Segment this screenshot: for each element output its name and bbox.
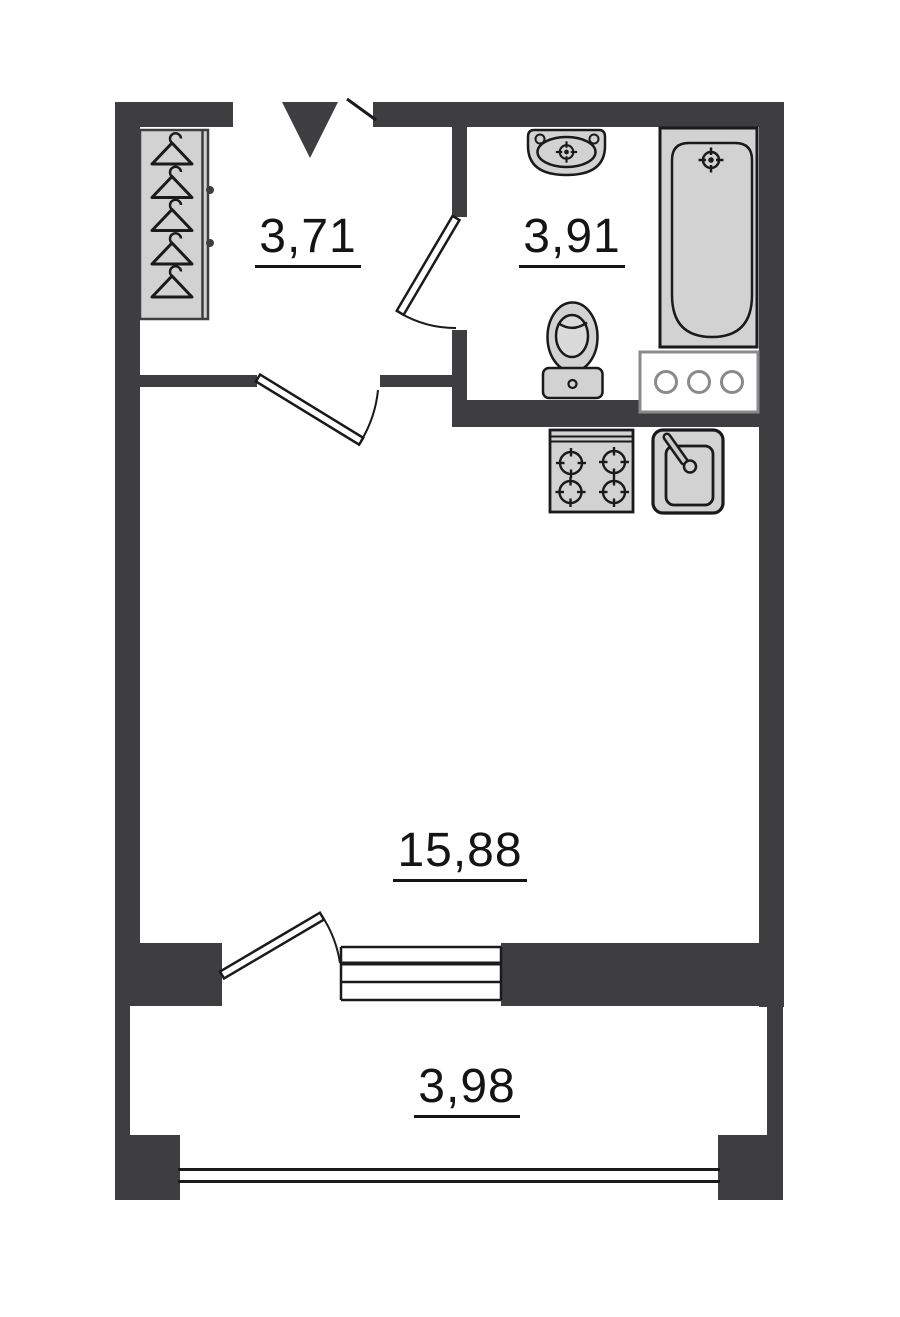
floor-plan: 3,71 3,91 15,88 3,98	[0, 0, 900, 1317]
balcony-door	[220, 913, 340, 979]
room-area-label-hallway: 3,71	[238, 212, 378, 268]
stove-icon	[550, 430, 633, 512]
area-value: 3,98	[414, 1062, 519, 1118]
window-icon	[341, 947, 501, 1000]
balcony-glazing-icon	[178, 1170, 720, 1182]
room-area-label-bathroom: 3,91	[502, 212, 642, 268]
room-area-label-balcony: 3,98	[397, 1062, 537, 1118]
door-swing-arc	[322, 916, 340, 963]
door-swing-arc	[400, 313, 456, 328]
area-value: 3,71	[255, 212, 360, 268]
entrance-door-leaf	[347, 99, 376, 120]
bathtub-icon	[660, 128, 757, 347]
door-leaf	[220, 913, 324, 979]
plan-graphics	[0, 0, 900, 1317]
wardrobe-hook	[206, 186, 214, 194]
interior-door-hallway-living	[256, 375, 378, 445]
interior-door-bathroom	[397, 216, 460, 328]
door-leaf	[256, 375, 363, 445]
entrance-arrow-icon	[282, 102, 338, 158]
toilet-icon	[543, 303, 603, 399]
area-value: 3,91	[519, 212, 624, 268]
room-area-label-living-room: 15,88	[375, 826, 545, 882]
door-swing-arc	[361, 390, 378, 441]
door-leaf	[397, 216, 460, 315]
wardrobe-hook	[206, 239, 214, 247]
kitchen-sink-icon	[653, 430, 723, 513]
wardrobe-icon	[140, 130, 214, 319]
area-value: 15,88	[393, 826, 526, 882]
washing-machine-icon	[640, 352, 758, 412]
bathroom-sink-icon	[528, 130, 605, 175]
